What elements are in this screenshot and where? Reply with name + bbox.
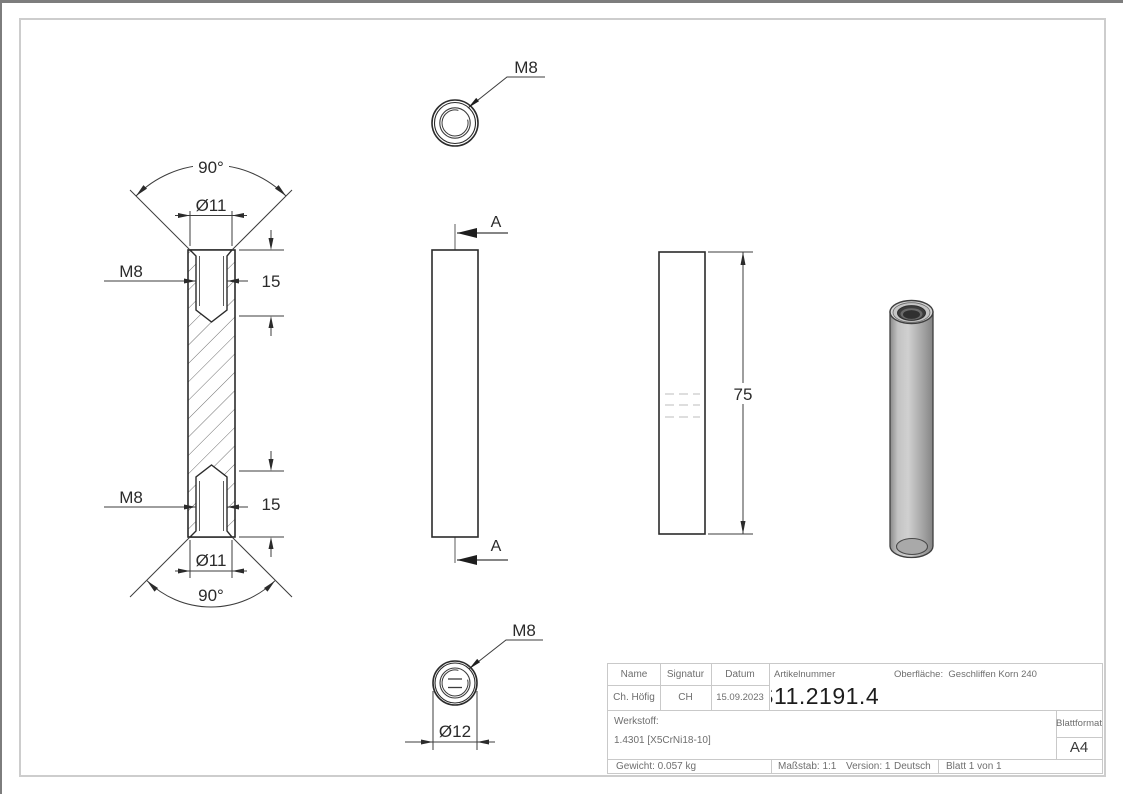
dimension-dia12 bbox=[405, 691, 495, 750]
divider bbox=[938, 759, 939, 773]
divider bbox=[608, 759, 1102, 760]
werkstoff-value: 1.4301 [X5CrNi18-10] bbox=[614, 735, 711, 746]
blattformat-label: Blattformat bbox=[1056, 710, 1102, 737]
oberflaeche-value: Geschliffen Korn 240 bbox=[948, 669, 1037, 680]
thread-arc bbox=[442, 110, 468, 136]
iso-view-cylinder bbox=[890, 301, 933, 558]
artikelnummer-value: S11.2191.4 bbox=[771, 683, 879, 710]
cylinder-bottom-chamfer bbox=[897, 539, 928, 555]
dimension-length-75-text: 75 bbox=[734, 385, 753, 404]
leader-m8-bottomview-text: M8 bbox=[512, 621, 536, 640]
dimension-depth-bottom-text: 15 bbox=[262, 495, 281, 514]
oberflaeche-label: Oberfläche: bbox=[894, 669, 943, 680]
leader-m8-topview bbox=[468, 77, 545, 108]
dimension-dia11-bottom-text: Ø11 bbox=[196, 551, 227, 570]
dimension-angle-bottom-text: 90° bbox=[198, 586, 224, 605]
divider bbox=[771, 759, 772, 773]
drawing-sheet: 90° Ø11 M8 bbox=[0, 0, 1123, 794]
section-label-top: A bbox=[491, 214, 502, 231]
gewicht-value: Gewicht: 0.057 kg bbox=[616, 761, 696, 772]
name-header: Name bbox=[608, 664, 660, 685]
dimension-depth-top-text: 15 bbox=[262, 272, 281, 291]
section-arrow-bottom bbox=[457, 555, 508, 565]
oberflaeche-row: Oberfläche: Geschliffen Korn 240 bbox=[894, 669, 1037, 680]
version-value: Version: 1 bbox=[846, 761, 890, 772]
blatt-value: Blatt 1 von 1 bbox=[946, 761, 1002, 772]
datum-value: 15.09.2023 bbox=[711, 686, 769, 710]
bottom-view-circles: M8 Ø12 bbox=[405, 621, 543, 750]
dimension-dia11-top bbox=[175, 211, 247, 246]
side-view-body bbox=[659, 252, 705, 534]
thread-arc bbox=[442, 670, 468, 696]
callout-m8-top-text: M8 bbox=[119, 262, 143, 281]
thread-bore-dark bbox=[903, 310, 920, 319]
center-mark bbox=[448, 679, 462, 688]
front-view: A A bbox=[432, 214, 508, 565]
signatur-value: CH bbox=[660, 686, 711, 710]
signatur-header: Signatur bbox=[660, 664, 711, 685]
front-view-body bbox=[432, 250, 478, 537]
sprache-value: Deutsch bbox=[894, 761, 931, 772]
callout-m8-bottom-text: M8 bbox=[119, 488, 143, 507]
leader-m8-bottomview bbox=[469, 640, 543, 669]
divider bbox=[769, 664, 770, 710]
cylinder-body bbox=[890, 312, 933, 558]
title-block: Name Signatur Datum Artikelnummer Oberfl… bbox=[607, 663, 1103, 774]
artikelnummer-header: Artikelnummer bbox=[774, 669, 835, 680]
section-view: 90° Ø11 M8 bbox=[104, 158, 292, 607]
werkstoff-label: Werkstoff: bbox=[614, 716, 659, 727]
divider bbox=[608, 710, 1102, 711]
blattformat-value: A4 bbox=[1056, 737, 1102, 759]
leader-m8-topview-text: M8 bbox=[514, 58, 538, 77]
dimension-dia11-top-text: Ø11 bbox=[196, 196, 227, 215]
datum-header: Datum bbox=[711, 664, 769, 685]
side-view: 75 bbox=[659, 252, 753, 534]
massstab-value: Maßstab: 1:1 bbox=[778, 761, 836, 772]
top-view-circles: M8 bbox=[432, 58, 545, 146]
section-label-bottom: A bbox=[491, 538, 502, 555]
dimension-angle-top-text: 90° bbox=[198, 158, 224, 177]
name-value: Ch. Höfig bbox=[608, 686, 660, 710]
artikelnummer-number: 11.2191.4 bbox=[774, 683, 879, 709]
dimension-dia12-text: Ø12 bbox=[439, 722, 471, 741]
